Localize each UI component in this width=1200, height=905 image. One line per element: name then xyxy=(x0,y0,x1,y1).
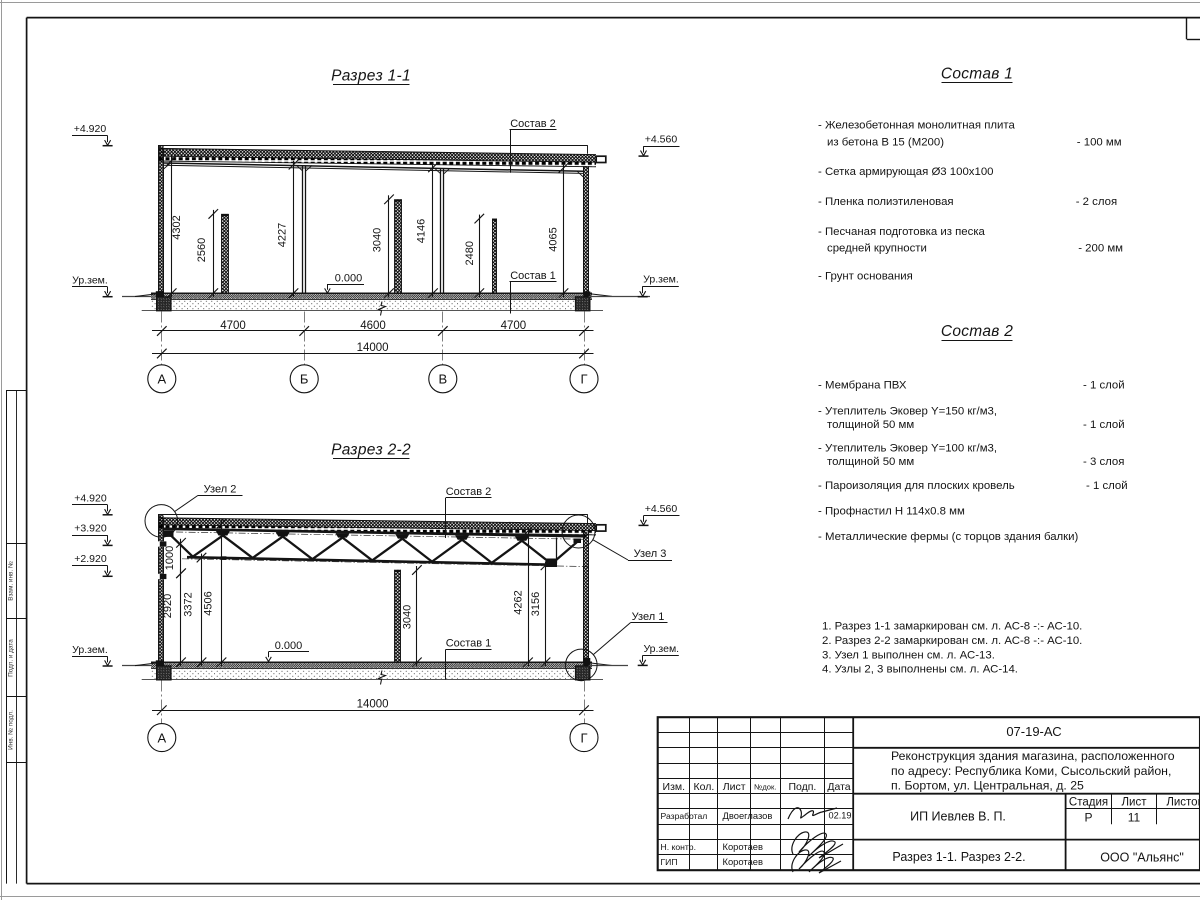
svg-text:Лист: Лист xyxy=(723,781,746,793)
svg-text:Разрез 2-2: Разрез 2-2 xyxy=(331,442,411,459)
svg-text:- 100 мм: - 100 мм xyxy=(1077,137,1122,149)
svg-text:- Профнастил Н 114х0.8 мм: - Профнастил Н 114х0.8 мм xyxy=(818,506,965,518)
svg-text:- Грунт основания: - Грунт основания xyxy=(818,271,913,283)
svg-text:- 1 слой: - 1 слой xyxy=(1083,419,1125,431)
svg-text:Ур.зем.: Ур.зем. xyxy=(72,274,108,286)
svg-text:средней крупности: средней крупности xyxy=(827,243,927,255)
svg-text:по адресу: Республика Коми, Сы: по адресу: Республика Коми, Сысольский р… xyxy=(891,764,1171,778)
svg-text:2920: 2920 xyxy=(162,594,174,618)
svg-text:- Песчаная подготовка из песка: - Песчаная подготовка из песка xyxy=(818,226,986,238)
svg-text:Узел 2: Узел 2 xyxy=(204,484,237,496)
svg-text:3040: 3040 xyxy=(402,605,414,629)
svg-text:4065: 4065 xyxy=(547,227,559,251)
svg-text:+4.560: +4.560 xyxy=(645,134,678,146)
svg-text:Ур.зем.: Ур.зем. xyxy=(643,274,679,286)
svg-text:07-19-АС: 07-19-АС xyxy=(1006,724,1061,739)
svg-text:из бетона В 15 (М200): из бетона В 15 (М200) xyxy=(827,137,944,149)
svg-text:4700: 4700 xyxy=(220,320,246,332)
svg-text:4506: 4506 xyxy=(202,591,214,615)
svg-text:3. Узел 1 выполнен см. л. АС-1: 3. Узел 1 выполнен см. л. АС-13. xyxy=(822,649,995,661)
svg-text:4600: 4600 xyxy=(360,320,386,332)
svg-text:Б: Б xyxy=(300,372,309,387)
svg-text:- Мембрана ПВХ: - Мембрана ПВХ xyxy=(818,380,907,392)
svg-text:+4.560: +4.560 xyxy=(645,503,678,515)
svg-text:Реконструкция здания магазина,: Реконструкция здания магазина, расположе… xyxy=(891,749,1175,763)
svg-text:- Сетка армирующая Ø3 100х100: - Сетка армирующая Ø3 100х100 xyxy=(818,166,994,178)
svg-text:+3.920: +3.920 xyxy=(74,523,107,535)
svg-text:Двоеглазов: Двоеглазов xyxy=(723,810,773,821)
svg-text:1. Разрез 1-1 замаркирован см.: 1. Разрез 1-1 замаркирован см. л. АС-8 -… xyxy=(822,621,1082,633)
svg-text:Узел 1: Узел 1 xyxy=(632,611,665,623)
svg-text:толщиной 50 мм: толщиной 50 мм xyxy=(827,456,914,468)
svg-text:- 1 слой: - 1 слой xyxy=(1083,380,1125,392)
svg-text:А: А xyxy=(157,730,166,745)
svg-text:2480: 2480 xyxy=(464,241,476,265)
svg-text:1000: 1000 xyxy=(164,546,176,570)
svg-text:4227: 4227 xyxy=(277,223,289,247)
svg-text:3372: 3372 xyxy=(182,592,194,616)
svg-text:Узел 3: Узел 3 xyxy=(634,548,667,560)
svg-text:Изм.: Изм. xyxy=(663,781,686,793)
svg-text:Состав 2: Состав 2 xyxy=(446,486,492,498)
svg-text:Состав 1: Состав 1 xyxy=(510,270,556,282)
svg-text:Лист: Лист xyxy=(1122,796,1148,808)
svg-text:14000: 14000 xyxy=(357,342,389,354)
svg-text:Н. контр.: Н. контр. xyxy=(661,842,696,852)
svg-text:№док.: №док. xyxy=(754,782,776,791)
svg-text:0.000: 0.000 xyxy=(275,640,303,652)
svg-text:3156: 3156 xyxy=(530,592,542,616)
svg-text:Состав 1: Состав 1 xyxy=(941,66,1013,83)
svg-text:Г: Г xyxy=(580,372,587,387)
svg-text:- 2 слоя: - 2 слоя xyxy=(1076,196,1117,208)
svg-text:+2.920: +2.920 xyxy=(74,553,107,565)
svg-text:ООО "Альянс": ООО "Альянс" xyxy=(1100,850,1184,864)
svg-text:02.19: 02.19 xyxy=(829,811,852,821)
svg-text:Разрез 1-1. Разрез 2-2.: Разрез 1-1. Разрез 2-2. xyxy=(892,850,1025,864)
svg-text:Коротаев: Коротаев xyxy=(723,841,764,852)
svg-text:11: 11 xyxy=(1128,810,1141,824)
svg-text:Листов: Листов xyxy=(1166,796,1200,808)
svg-text:Подп. и дата: Подп. и дата xyxy=(8,639,15,677)
svg-text:Инв. № подл.: Инв. № подл. xyxy=(8,710,15,750)
svg-text:Разрез 1-1: Разрез 1-1 xyxy=(331,68,411,85)
svg-text:Кол.: Кол. xyxy=(694,781,715,793)
svg-text:Состав 1: Состав 1 xyxy=(446,638,492,650)
svg-text:2. Разрез 2-2 замаркирован см.: 2. Разрез 2-2 замаркирован см. л. АС-8 -… xyxy=(822,635,1082,647)
svg-text:Р: Р xyxy=(1084,810,1092,824)
svg-text:3040: 3040 xyxy=(371,228,383,252)
svg-text:14000: 14000 xyxy=(357,698,389,710)
svg-text:- Металлические фермы (с торцо: - Металлические фермы (с торцов здания б… xyxy=(818,531,1079,543)
svg-text:- Железобетонная монолитная п: - Железобетонная монолитная плита xyxy=(818,120,1015,132)
svg-text:Дата: Дата xyxy=(827,781,850,793)
svg-text:Разработал: Разработал xyxy=(661,811,708,821)
svg-text:п. Бортом, ул. Центральная, д.: п. Бортом, ул. Центральная, д. 25 xyxy=(891,779,1084,793)
svg-text:4700: 4700 xyxy=(501,320,527,332)
svg-text:Состав 2: Состав 2 xyxy=(941,323,1013,340)
svg-text:Ур.зем.: Ур.зем. xyxy=(72,644,108,656)
svg-text:- Утеплитель Эковер Y=100 кг/м: - Утеплитель Эковер Y=100 кг/м3, xyxy=(818,443,997,455)
svg-text:Подп.: Подп. xyxy=(788,781,816,793)
svg-text:+4.920: +4.920 xyxy=(74,123,107,135)
svg-text:4302: 4302 xyxy=(171,215,183,239)
svg-text:4262: 4262 xyxy=(512,590,524,614)
svg-text:- Пароизоляция для плоских кро: - Пароизоляция для плоских кровель xyxy=(818,480,1015,492)
svg-text:Г: Г xyxy=(580,730,587,745)
svg-text:толщиной 50 мм: толщиной 50 мм xyxy=(827,419,914,431)
svg-text:4146: 4146 xyxy=(415,219,427,243)
svg-text:2560: 2560 xyxy=(196,238,208,262)
svg-text:В: В xyxy=(438,372,447,387)
svg-text:- 3 слоя: - 3 слоя xyxy=(1083,456,1124,468)
svg-text:А: А xyxy=(157,372,166,387)
svg-text:Коротаев: Коротаев xyxy=(723,856,764,867)
svg-text:Состав 2: Состав 2 xyxy=(510,118,556,130)
svg-text:- 1 слой: - 1 слой xyxy=(1086,480,1128,492)
svg-text:+4.920: +4.920 xyxy=(74,492,107,504)
svg-text:Взам. инв. №: Взам. инв. № xyxy=(8,561,15,601)
svg-text:0.000: 0.000 xyxy=(335,272,363,284)
svg-text:- Пленка полиэтиленовая: - Пленка полиэтиленовая xyxy=(818,196,954,208)
svg-text:ГИП: ГИП xyxy=(661,857,678,867)
svg-text:- 200 мм: - 200 мм xyxy=(1078,243,1123,255)
svg-text:Стадия: Стадия xyxy=(1069,796,1108,808)
svg-text:- Утеплитель Эковер Y=150 кг/м: - Утеплитель Эковер Y=150 кг/м3, xyxy=(818,406,997,418)
svg-text:4. Узлы 2, 3 выполнены см. л.: 4. Узлы 2, 3 выполнены см. л. АС-14. xyxy=(822,664,1018,676)
svg-text:Ур.зем.: Ур.зем. xyxy=(643,643,679,655)
svg-text:ИП Иевлев В. П.: ИП Иевлев В. П. xyxy=(910,810,1006,824)
